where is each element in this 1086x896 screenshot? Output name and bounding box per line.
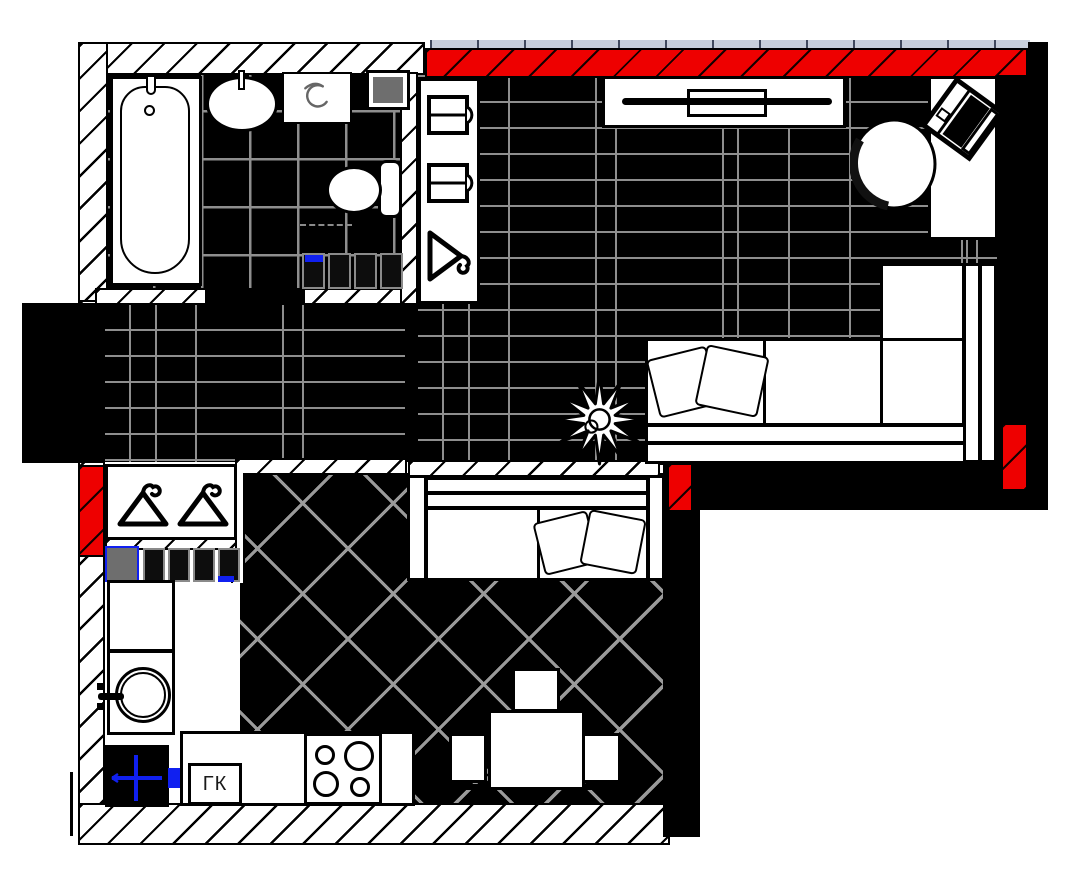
stove-burner (344, 741, 374, 771)
office-chair-icon (850, 118, 938, 210)
hanger-icon (174, 475, 232, 533)
outer-boundary-tick (70, 772, 73, 836)
kitchen-sofa-pillow (579, 509, 647, 575)
shoe-cabinet-cell (193, 548, 215, 582)
wall-hall-kitchen (235, 458, 407, 475)
shoe-cabinet-cell-gray (105, 546, 139, 582)
stove-burner (350, 777, 370, 797)
kitchen-faucet-nub (97, 683, 104, 690)
cabinet-cell (328, 253, 351, 289)
wall-bottom-living-black (663, 462, 1048, 510)
shoe-cabinet-cell (143, 548, 165, 582)
stove-burner (315, 745, 335, 765)
kitchen-sink-inner (120, 672, 166, 718)
toilet-bowl (326, 166, 382, 214)
stove (304, 733, 382, 805)
sofa-chaise-seat (880, 263, 965, 341)
office-chair (850, 118, 938, 210)
sofa-pillow (694, 344, 769, 418)
bathtub (110, 76, 202, 286)
kitchen-faucet (98, 693, 124, 700)
bathroom-door-opening (205, 289, 305, 304)
cabinet-cell (380, 253, 403, 289)
folded-clothes-icon (426, 161, 474, 205)
kitchen-counter-sink (107, 650, 175, 735)
bathroom-cabinet-row (302, 251, 404, 291)
shoe-cabinet-blue-mark (218, 576, 234, 582)
bathtub-faucet (146, 75, 156, 95)
black-mass-left (22, 303, 105, 463)
bathroom-dashed-line (300, 224, 352, 226)
bathtub-inner (120, 86, 190, 274)
floor-plan: ГК (0, 0, 1086, 896)
wall-hall-living (405, 303, 418, 462)
wall-left-top (78, 42, 108, 305)
blue-cross-icon (105, 745, 169, 807)
sofa-chaise-rail (979, 263, 997, 463)
gas-boiler-label: ГК (203, 773, 227, 796)
sofa-front-rail (645, 442, 997, 464)
red-pier-right (1001, 423, 1028, 491)
gas-boiler-box: ГК (188, 763, 242, 805)
stove-burner (313, 771, 339, 797)
dining-chair-left (449, 733, 487, 783)
shoe-cabinet-cell (168, 548, 190, 582)
hanger-icon (114, 475, 172, 533)
hallway-floor (105, 303, 407, 462)
sofa-front-rail (645, 424, 995, 444)
washing-machine-swirl-icon (284, 74, 348, 120)
wall-top-red (425, 48, 1028, 78)
bathtub-drain (144, 105, 155, 116)
folded-clothes-icon (426, 93, 474, 137)
gas-point-square (105, 745, 169, 807)
kitchen-sofa-armrest (647, 475, 665, 581)
cabinet-blue-mark (305, 255, 323, 262)
tv-screen (622, 98, 832, 105)
cabinet-cell (354, 253, 377, 289)
hanger-icon (421, 227, 479, 285)
plant-icon (552, 372, 647, 467)
plant (552, 372, 647, 467)
living-wardrobe (418, 78, 480, 304)
red-wall-left (78, 465, 105, 557)
sofa-seat-divider (880, 341, 883, 423)
dining-chair-top (512, 668, 560, 712)
washing-machine (282, 72, 352, 124)
sink-faucet (238, 70, 245, 90)
entry-closet (105, 464, 237, 540)
wall-bottom (78, 803, 670, 845)
dining-table (488, 710, 585, 790)
tv-stand (602, 76, 846, 128)
kitchen-faucet-nub (97, 703, 104, 710)
kitchen-counter-upper (107, 580, 175, 652)
kitchen-sofa-armrest (407, 475, 427, 581)
wall-kitchen-right-black (663, 510, 700, 837)
vent-shaft (366, 70, 410, 110)
dining-chair-right (582, 733, 621, 783)
